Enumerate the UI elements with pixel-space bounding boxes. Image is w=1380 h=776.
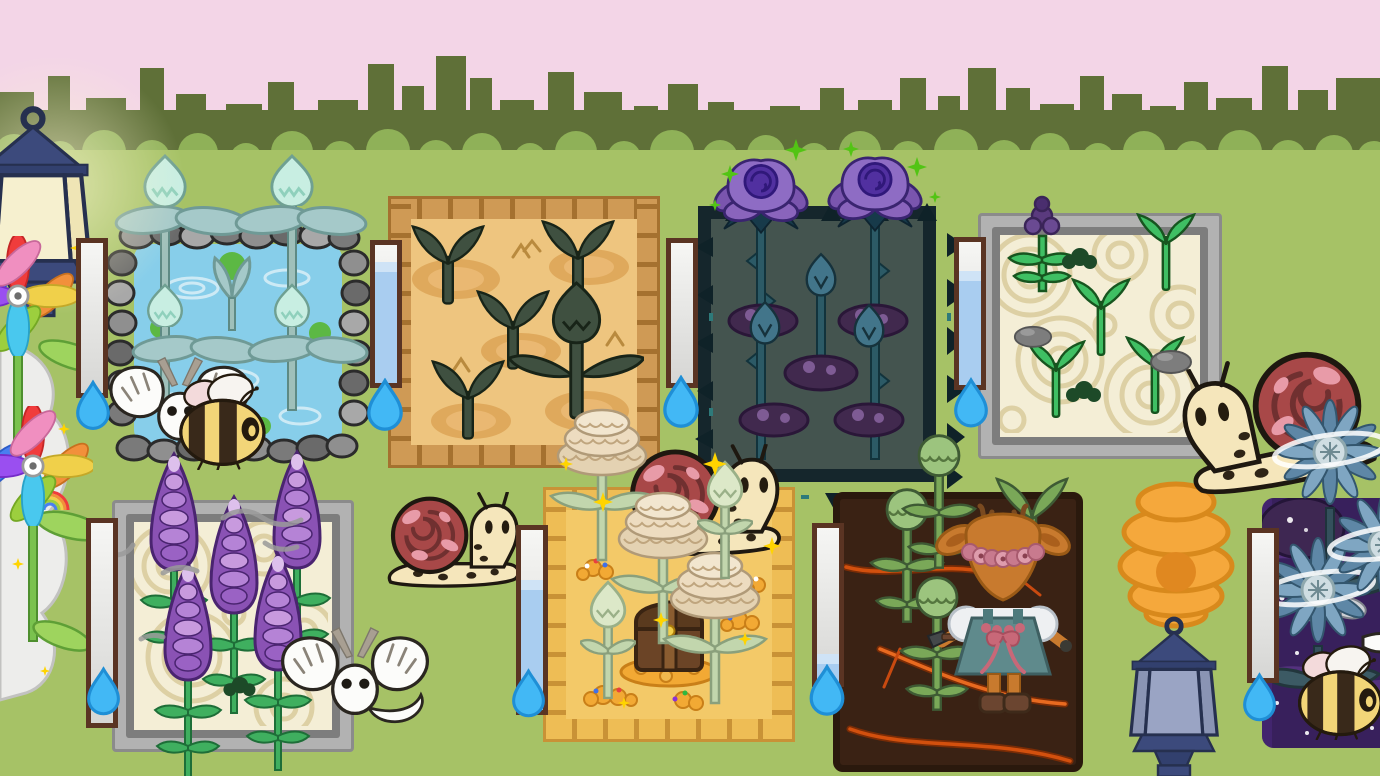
water-droplet-icon[interactable]	[366, 376, 404, 433]
water-gauge	[1247, 528, 1279, 683]
water-droplet-icon[interactable]	[511, 666, 546, 720]
bumblebee[interactable]	[1279, 642, 1380, 740]
water-gauge	[812, 523, 844, 687]
water-gauge	[666, 238, 698, 388]
water-droplet-icon[interactable]	[1242, 668, 1277, 726]
marigold-flowers[interactable]	[523, 397, 823, 757]
water-droplet-icon[interactable]	[953, 376, 989, 429]
garden-scene	[0, 0, 1380, 776]
white-moth[interactable]	[276, 626, 434, 733]
water-gauge	[370, 240, 402, 388]
street-lantern-unlit[interactable]	[1126, 615, 1222, 776]
water-droplet-icon[interactable]	[86, 664, 121, 718]
snail[interactable]	[378, 492, 528, 592]
water-gauge	[954, 237, 986, 390]
water-droplet-icon[interactable]	[662, 374, 700, 429]
water-droplet-icon[interactable]	[808, 664, 846, 716]
lavender-bloom[interactable]	[1009, 197, 1075, 291]
water-droplet-icon[interactable]	[75, 378, 111, 432]
water-gauge	[76, 238, 108, 398]
deer-gardener[interactable]	[928, 506, 1078, 716]
